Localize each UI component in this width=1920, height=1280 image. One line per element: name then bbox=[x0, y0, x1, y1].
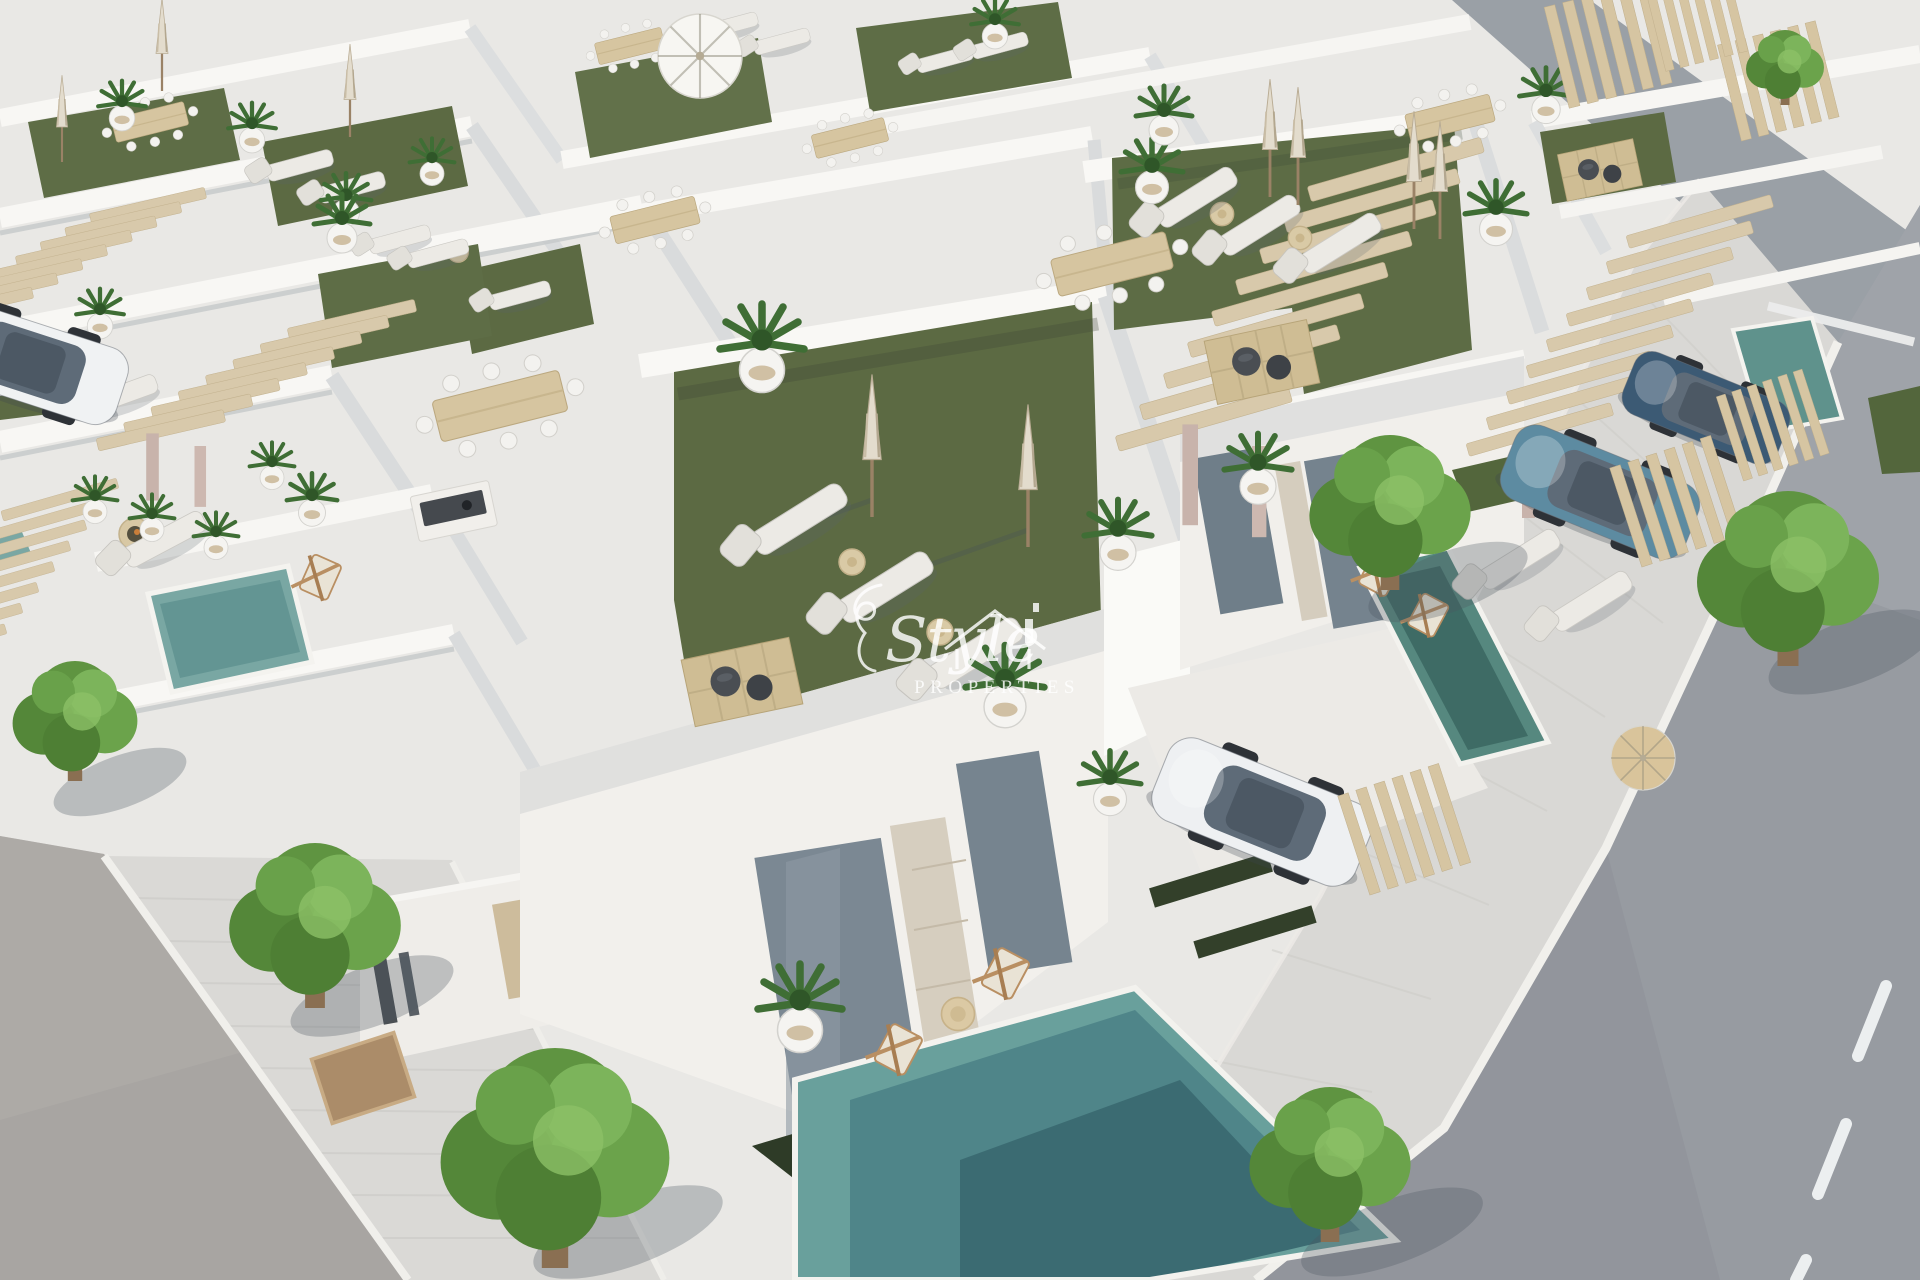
side-table bbox=[927, 619, 953, 645]
umbrella-open bbox=[658, 14, 742, 98]
side-table bbox=[1288, 226, 1311, 249]
umbrella-open-wicker bbox=[1611, 726, 1675, 790]
aerial-render bbox=[0, 0, 1920, 1280]
side-table bbox=[839, 549, 865, 575]
render-stage: Style PROPERTIES bbox=[0, 0, 1920, 1280]
page: { "meta": { "description": "Aerial 3D ar… bbox=[0, 0, 1920, 1280]
wicker-pouf bbox=[942, 998, 975, 1031]
